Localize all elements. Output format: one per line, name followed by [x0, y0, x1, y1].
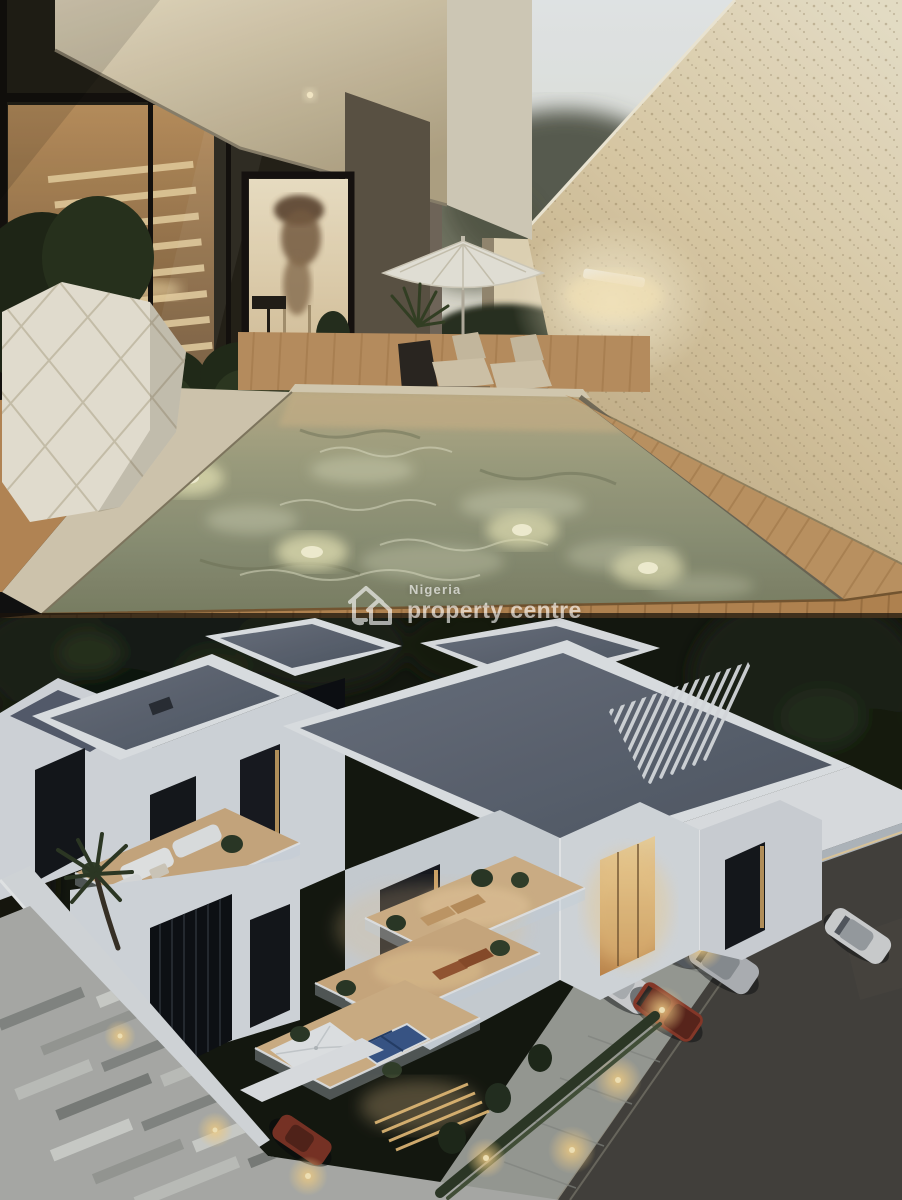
photo-courtyard-pool	[0, 0, 902, 618]
photo-collage: Nigeria property centre	[0, 0, 902, 1200]
photo-aerial-building	[0, 618, 902, 1200]
